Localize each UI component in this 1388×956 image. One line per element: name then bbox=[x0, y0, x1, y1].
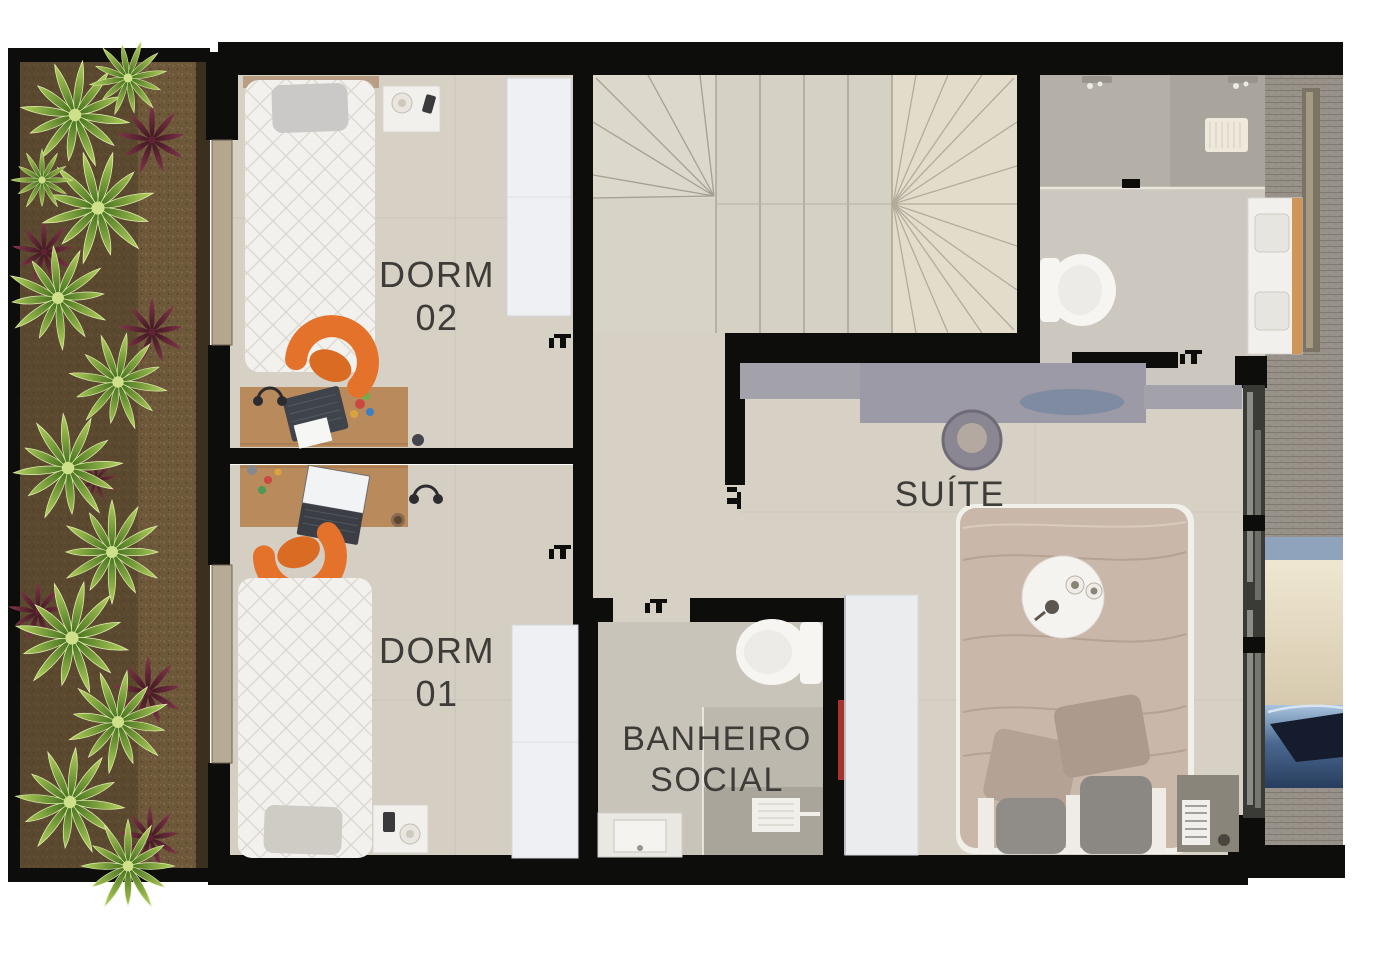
nightstand-icon bbox=[383, 86, 440, 132]
awning bbox=[1265, 560, 1343, 708]
desk-item bbox=[350, 410, 358, 418]
lamp-inner bbox=[406, 830, 414, 838]
desk-item bbox=[247, 465, 257, 475]
suite-bath-window bbox=[1302, 88, 1320, 352]
desk-item bbox=[366, 408, 374, 416]
room-label-dorm01-line2: 01 bbox=[415, 673, 458, 714]
shower-spray bbox=[1098, 82, 1103, 87]
room-label-banheiro-line1: BANHEIRO bbox=[622, 720, 812, 758]
sink-basin bbox=[1255, 292, 1289, 330]
cup-inner bbox=[1071, 581, 1079, 589]
slider-glass-1 bbox=[1247, 392, 1253, 582]
glass-roof-sliver bbox=[1265, 537, 1343, 560]
wall-bath-left bbox=[1017, 75, 1040, 390]
pillow-icon bbox=[1080, 776, 1152, 854]
mug-inner bbox=[394, 516, 402, 524]
single-bed-icon bbox=[238, 578, 372, 858]
cushion-icon bbox=[1052, 693, 1151, 779]
sliding-door-icon bbox=[1243, 385, 1265, 818]
suite-shower-left bbox=[1040, 75, 1170, 187]
pillow-icon bbox=[271, 83, 349, 134]
window-icon bbox=[212, 565, 232, 763]
lamp-inner bbox=[398, 99, 406, 107]
shower-spray bbox=[1087, 83, 1093, 89]
wardrobe-icon bbox=[507, 78, 571, 316]
sink-vanity-icon bbox=[1248, 198, 1302, 354]
desk-chair-cushion bbox=[957, 423, 987, 453]
magazine-icon bbox=[1182, 800, 1210, 845]
wardrobe-icon bbox=[845, 595, 918, 855]
room-label-dorm02-line1: DORM bbox=[379, 254, 495, 295]
room-label-dorm02-line2: 02 bbox=[415, 297, 458, 338]
bed-frame-post bbox=[1150, 788, 1166, 852]
window-icon bbox=[212, 140, 232, 345]
suite-closet bbox=[845, 595, 918, 855]
wall-top bbox=[218, 42, 1343, 75]
car-icon bbox=[1265, 705, 1343, 790]
desk-item bbox=[264, 476, 272, 484]
shower-spray bbox=[1244, 82, 1249, 87]
mouse-icon bbox=[412, 434, 424, 446]
pillow-icon bbox=[263, 805, 343, 856]
slider-frame bbox=[1243, 385, 1265, 818]
desk-item bbox=[258, 486, 266, 494]
nightstand-icon bbox=[373, 805, 428, 853]
drain-plate bbox=[1205, 118, 1248, 152]
bench-icon bbox=[1177, 775, 1239, 852]
shower-spray bbox=[1233, 83, 1239, 89]
wall-left-mid bbox=[208, 345, 230, 565]
sink-vanity-icon bbox=[598, 813, 682, 857]
room-label-suite: SUÍTE bbox=[895, 475, 1006, 514]
serving-tray-icon bbox=[1022, 556, 1104, 638]
lounge-chair-icon bbox=[1020, 389, 1124, 415]
ear-cup bbox=[433, 494, 443, 504]
pot-icon bbox=[1045, 600, 1059, 614]
ear-cup bbox=[409, 494, 419, 504]
wall-left-low bbox=[208, 763, 230, 863]
ear-cup bbox=[253, 396, 263, 406]
shower-arm bbox=[1228, 76, 1258, 83]
sink-basin bbox=[1255, 214, 1289, 252]
garden-frame-left bbox=[8, 48, 20, 882]
floor-plan-page: DORM 02 DORM 01 BANHEIRO SOCIAL SUÍTE bbox=[0, 0, 1388, 956]
wall-bottom bbox=[208, 855, 1248, 885]
double-bed-icon bbox=[956, 504, 1194, 854]
wall-corner-bath bbox=[1235, 356, 1267, 388]
garden-wall-shadow bbox=[196, 62, 210, 868]
toilet-seat bbox=[1058, 265, 1102, 315]
slider-joint bbox=[1243, 515, 1265, 531]
cup-inner bbox=[1091, 588, 1098, 595]
shower-arm bbox=[1082, 76, 1112, 83]
stairs-icon bbox=[593, 75, 1017, 333]
vanity-wood-edge bbox=[1292, 198, 1302, 354]
window-glass bbox=[1306, 92, 1313, 348]
glass-fitting bbox=[1122, 179, 1140, 188]
bed-frame-post bbox=[1066, 795, 1080, 853]
toilet-seat bbox=[744, 630, 792, 674]
nightstand-top bbox=[373, 805, 428, 853]
slider-glass-4 bbox=[1255, 648, 1261, 808]
toilet-icon bbox=[736, 619, 822, 685]
wall-stairs-suite bbox=[725, 333, 1020, 363]
wall-banheiro-left bbox=[578, 600, 598, 858]
room-label-banheiro-line2: SOCIAL bbox=[650, 761, 784, 799]
room-label-dorm01-line1: DORM bbox=[379, 630, 495, 671]
desk-slab-a bbox=[740, 363, 862, 399]
wall-banheiro-top-a bbox=[593, 598, 613, 622]
wall-between-dorms bbox=[230, 448, 573, 464]
toilet-icon bbox=[1040, 254, 1116, 326]
shower-tray bbox=[752, 798, 800, 832]
exterior-brick-lower bbox=[1265, 788, 1343, 845]
shower-drain bbox=[1205, 118, 1248, 152]
wall-left-chunk bbox=[206, 52, 238, 140]
slider-joint bbox=[1243, 637, 1265, 653]
phone-icon bbox=[383, 812, 395, 832]
bed-frame-post bbox=[978, 798, 994, 852]
desk-icon bbox=[240, 385, 424, 449]
pillow-icon bbox=[996, 798, 1066, 854]
desk-slab-c bbox=[1144, 385, 1242, 409]
desk-item bbox=[275, 469, 282, 476]
wardrobe-icon bbox=[512, 625, 578, 858]
bench-knob bbox=[1218, 834, 1230, 846]
floor-plan-svg: DORM 02 DORM 01 BANHEIRO SOCIAL SUÍTE bbox=[0, 0, 1388, 956]
stair-landing bbox=[593, 198, 716, 333]
wall-banheiro-top-b bbox=[690, 598, 825, 622]
desk-item bbox=[355, 399, 365, 409]
faucet-icon bbox=[637, 845, 643, 851]
ear-cup bbox=[277, 396, 287, 406]
